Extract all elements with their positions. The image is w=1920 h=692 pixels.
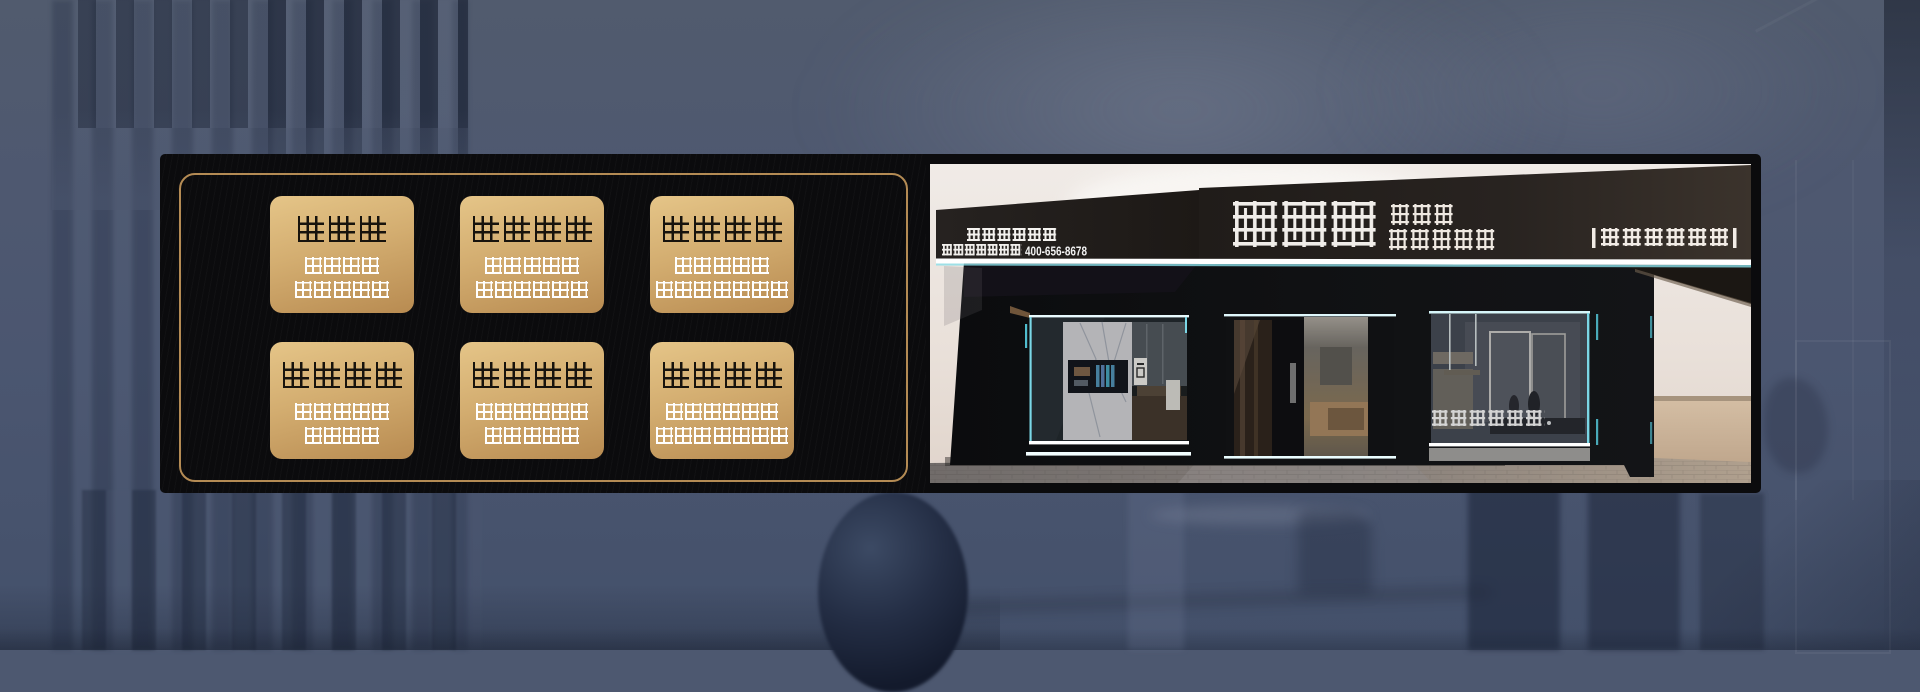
svg-text:400-656-8678: 400-656-8678: [1025, 244, 1087, 259]
